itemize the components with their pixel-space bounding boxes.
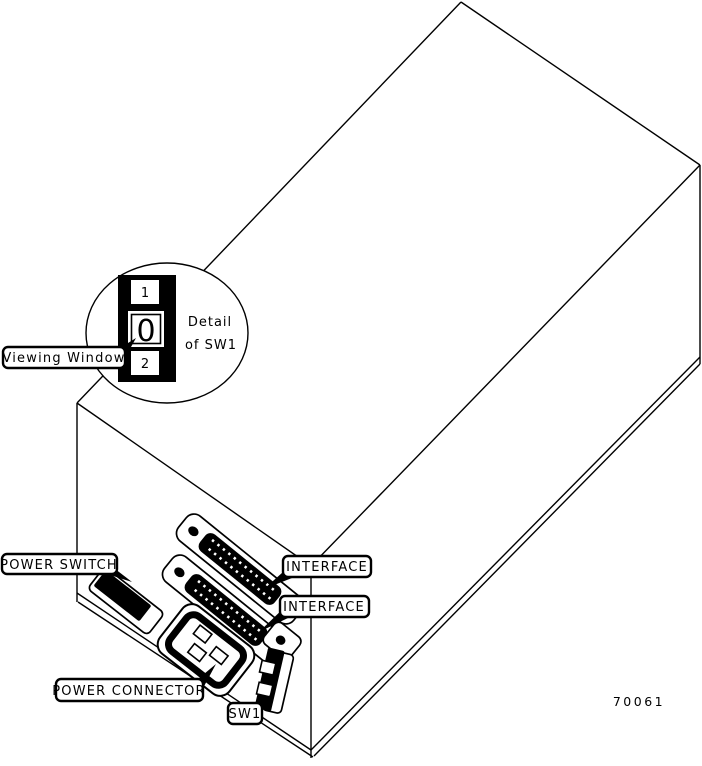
callout-label: INTERFACE [286, 560, 368, 575]
enclosure-drawing: 1 0 2 Detail of SW1 Viewing Window POWER… [0, 0, 702, 766]
sw1-position-2: 2 [141, 357, 149, 372]
sw1-button [256, 682, 272, 697]
right-bottom-edge [311, 357, 700, 750]
callout-label: INTERFACE [283, 600, 365, 615]
top-front-edge [311, 165, 700, 566]
detail-circle: 1 0 2 Detail of SW1 [86, 263, 248, 403]
callout-label: SW1 [229, 707, 262, 722]
callout-label: Viewing Window [2, 351, 125, 366]
top-right-edge [461, 2, 700, 165]
technical-diagram: 1 0 2 Detail of SW1 Viewing Window POWER… [0, 0, 702, 766]
detail-caption-line1: Detail [188, 315, 232, 330]
callout-label: POWER SWITCH [0, 558, 118, 573]
figure-number: 70061 [613, 694, 665, 709]
sw1-position-1: 1 [141, 286, 149, 301]
sw1-position-0: 0 [136, 314, 155, 349]
callout-label: POWER CONNECTOR [52, 684, 206, 699]
sw1-button [259, 660, 275, 675]
detail-caption-line2: of SW1 [185, 338, 237, 353]
